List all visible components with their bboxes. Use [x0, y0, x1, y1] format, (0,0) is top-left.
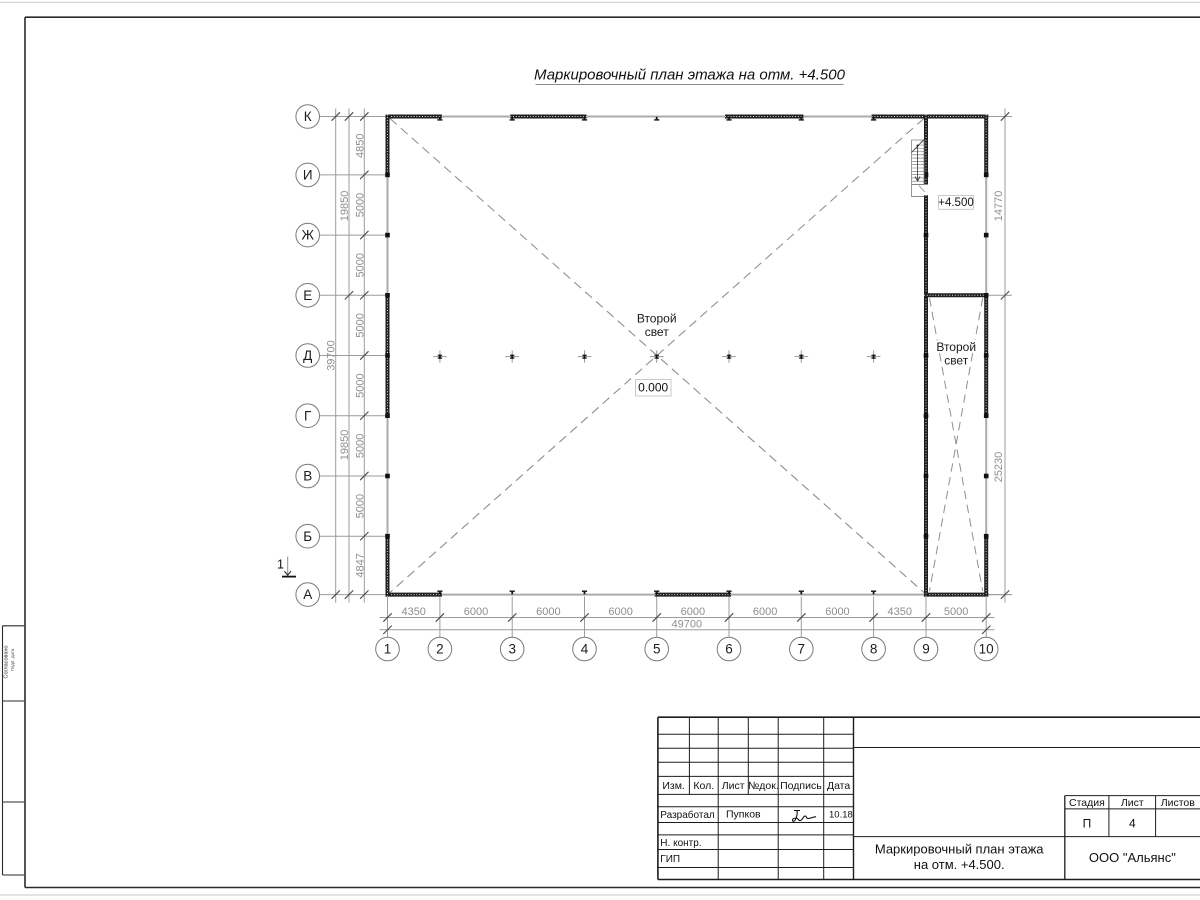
svg-text:5000: 5000 [944, 606, 968, 618]
svg-text:2: 2 [436, 642, 444, 657]
svg-text:И: И [303, 168, 313, 183]
svg-text:Кол.: Кол. [693, 780, 714, 792]
svg-text:4: 4 [581, 642, 589, 657]
svg-text:4: 4 [1129, 817, 1136, 831]
svg-text:39700: 39700 [326, 340, 338, 371]
svg-text:Е: Е [303, 288, 312, 303]
svg-text:6000: 6000 [536, 606, 560, 618]
svg-text:49700: 49700 [672, 618, 703, 630]
svg-text:5000: 5000 [354, 253, 366, 277]
svg-text:6000: 6000 [681, 606, 705, 618]
svg-text:6000: 6000 [608, 606, 632, 618]
svg-text:Д: Д [303, 348, 312, 363]
svg-text:19850: 19850 [339, 430, 351, 461]
svg-text:Второй: Второй [936, 340, 976, 354]
svg-text:Маркировочный план этажа на от: Маркировочный план этажа на отм. +4.500 [534, 67, 846, 84]
svg-text:19850: 19850 [339, 191, 351, 222]
svg-text:4350: 4350 [888, 606, 912, 618]
svg-text:7: 7 [798, 642, 806, 657]
svg-text:25230: 25230 [993, 452, 1005, 483]
svg-text:5000: 5000 [354, 373, 366, 397]
svg-text:ООО "Альянс": ООО "Альянс" [1089, 850, 1176, 865]
svg-text:К: К [304, 109, 312, 124]
svg-text:Маркировочный план этажа: Маркировочный план этажа [875, 842, 1044, 857]
svg-text:10.18: 10.18 [829, 810, 853, 821]
svg-text:1: 1 [384, 642, 392, 657]
svg-text:6000: 6000 [753, 606, 777, 618]
svg-text:10: 10 [979, 642, 994, 657]
svg-text:4847: 4847 [354, 553, 366, 577]
svg-text:свет: свет [944, 354, 969, 368]
svg-text:на отм. +4.500.: на отм. +4.500. [914, 857, 1005, 872]
svg-text:Стадия: Стадия [1069, 797, 1105, 809]
svg-text:№док.: №док. [748, 780, 779, 792]
svg-text:А: А [303, 587, 312, 602]
svg-text:6000: 6000 [825, 606, 849, 618]
svg-text:В: В [303, 469, 312, 484]
svg-text:+4.500: +4.500 [938, 197, 974, 209]
svg-text:14770: 14770 [993, 191, 1005, 222]
svg-text:Лист: Лист [722, 780, 745, 792]
svg-text:4850: 4850 [354, 133, 366, 157]
svg-text:5000: 5000 [354, 494, 366, 518]
svg-text:Второй: Второй [637, 312, 677, 326]
svg-text:Подпись: Подпись [780, 780, 822, 792]
svg-text:Дата: Дата [827, 780, 850, 792]
svg-text:Пупков: Пупков [726, 809, 761, 821]
svg-text:5: 5 [653, 642, 661, 657]
svg-text:5000: 5000 [354, 434, 366, 458]
svg-text:6: 6 [725, 642, 733, 657]
svg-text:6000: 6000 [464, 606, 488, 618]
svg-text:Н. контр.: Н. контр. [660, 838, 701, 849]
svg-text:Листов: Листов [1161, 797, 1196, 809]
svg-text:Ж: Ж [301, 228, 314, 243]
svg-text:свет: свет [645, 325, 670, 339]
svg-text:Изм.: Изм. [662, 780, 685, 792]
svg-text:Лист: Лист [1121, 797, 1144, 809]
svg-text:8: 8 [870, 642, 878, 657]
svg-text:3: 3 [508, 642, 516, 657]
svg-text:5000: 5000 [354, 313, 366, 337]
svg-text:Согласовано: Согласовано [4, 645, 10, 678]
svg-text:П: П [1083, 817, 1092, 831]
svg-text:Подп. дата: Подп. дата [10, 648, 15, 671]
svg-text:9: 9 [922, 642, 930, 657]
svg-text:Б: Б [303, 529, 312, 544]
svg-text:4350: 4350 [401, 606, 425, 618]
svg-text:Разработал: Разработал [660, 809, 715, 821]
svg-text:5000: 5000 [354, 193, 366, 217]
svg-text:0.000: 0.000 [638, 381, 668, 395]
svg-text:ГИП: ГИП [660, 854, 680, 865]
svg-text:Г: Г [304, 408, 312, 423]
svg-text:1: 1 [277, 558, 284, 572]
